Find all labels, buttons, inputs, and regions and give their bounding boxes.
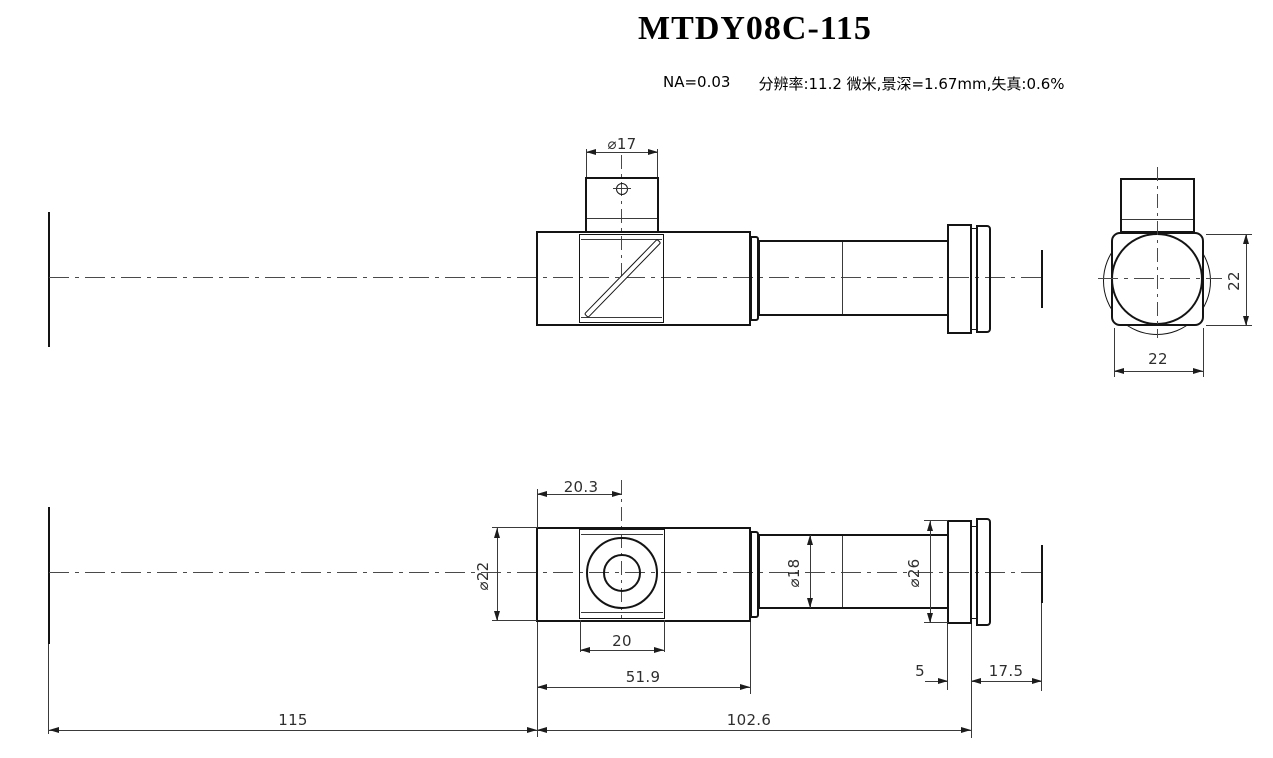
dim-20-label: 20 <box>582 631 662 651</box>
bottom-object-plane-extension <box>48 644 49 734</box>
side-image-plane-line <box>1041 250 1043 308</box>
side-lens-tube <box>758 240 949 316</box>
side-end-cap <box>976 225 991 333</box>
side-phi17-dim-label: ⌀17 <box>582 134 662 154</box>
side-camera-port-step-line <box>587 218 657 219</box>
end-height22-dim-line <box>1246 234 1247 326</box>
dim-51-9-line <box>537 687 750 688</box>
arrowhead <box>494 611 500 621</box>
arrowhead <box>49 727 59 733</box>
bottom-port-plate-top-line <box>581 534 663 535</box>
arrowhead <box>927 613 933 623</box>
arrowhead <box>494 528 500 538</box>
dim-51-9-extension-left <box>537 622 538 737</box>
bottom-port-plate-bottom-line <box>581 612 663 613</box>
dim-51-9-extension-right <box>750 622 751 694</box>
dim-phi26-line <box>930 521 931 623</box>
bottom-end-cap <box>976 518 991 626</box>
arrowhead <box>927 521 933 531</box>
side-tube-joint-line <box>842 242 843 314</box>
arrowhead <box>807 598 813 608</box>
arrowhead <box>1243 234 1249 244</box>
dim-17-5-label: 17.5 <box>976 661 1036 681</box>
end-height22-dim-label: 22 <box>1224 251 1244 311</box>
bottom-tube-joint-line <box>842 536 843 607</box>
bottom-image-plane-line <box>1041 545 1043 603</box>
end-vertical-centerline <box>1157 167 1158 338</box>
dim-20-extension-right <box>664 620 665 652</box>
arrowhead <box>527 727 537 733</box>
side-object-plane-line <box>48 212 50 347</box>
arrowhead <box>740 684 750 690</box>
arrowhead <box>537 684 547 690</box>
page-title: MTDY08C-115 <box>555 10 955 48</box>
side-prism-housing-bottom-line <box>581 317 662 318</box>
dim-102-6-label: 102.6 <box>709 710 789 730</box>
end-horizontal-centerline <box>1098 278 1222 279</box>
spec-line: NA=0.03 分辨率:11.2 微米,景深=1.67mm,失真:0.6% <box>663 73 1065 94</box>
dim-5-label: 5 <box>900 661 940 681</box>
spec-detail: 分辨率:11.2 微米,景深=1.67mm,失真:0.6% <box>758 73 1064 94</box>
arrowhead <box>537 727 547 733</box>
arrowhead <box>1243 316 1249 326</box>
bottom-port-inner-circle <box>603 554 641 592</box>
dim-115-line <box>49 730 537 731</box>
end-width22-dim-label: 22 <box>1118 349 1198 369</box>
side-set-screw-circle <box>616 183 628 195</box>
arrowhead <box>807 535 813 545</box>
dim-102-6-line <box>537 730 971 731</box>
dim-phi22-label: ⌀22 <box>473 541 493 611</box>
bottom-mount-flange <box>947 520 972 624</box>
arrowhead <box>961 727 971 733</box>
side-set-screw-tick <box>613 188 631 189</box>
dim-phi22-line <box>497 528 498 621</box>
dim-20-3-label: 20.3 <box>541 477 621 497</box>
end-width22-extension-right <box>1203 328 1204 377</box>
side-mount-flange <box>947 224 972 334</box>
bottom-object-plane-line <box>48 507 50 644</box>
spec-na: NA=0.03 <box>663 73 730 94</box>
end-width22-dim-line <box>1114 371 1203 372</box>
engineering-drawing: MTDY08C-115 NA=0.03 分辨率:11.2 微米,景深=1.67m… <box>0 0 1273 758</box>
dim-phi18-label: ⌀18 <box>784 538 804 608</box>
dim-phi26-label: ⌀26 <box>904 538 924 608</box>
dim-51-9-label: 51.9 <box>603 667 683 687</box>
side-prism-housing-top-line <box>581 239 662 240</box>
dim-115-label: 115 <box>253 710 333 730</box>
